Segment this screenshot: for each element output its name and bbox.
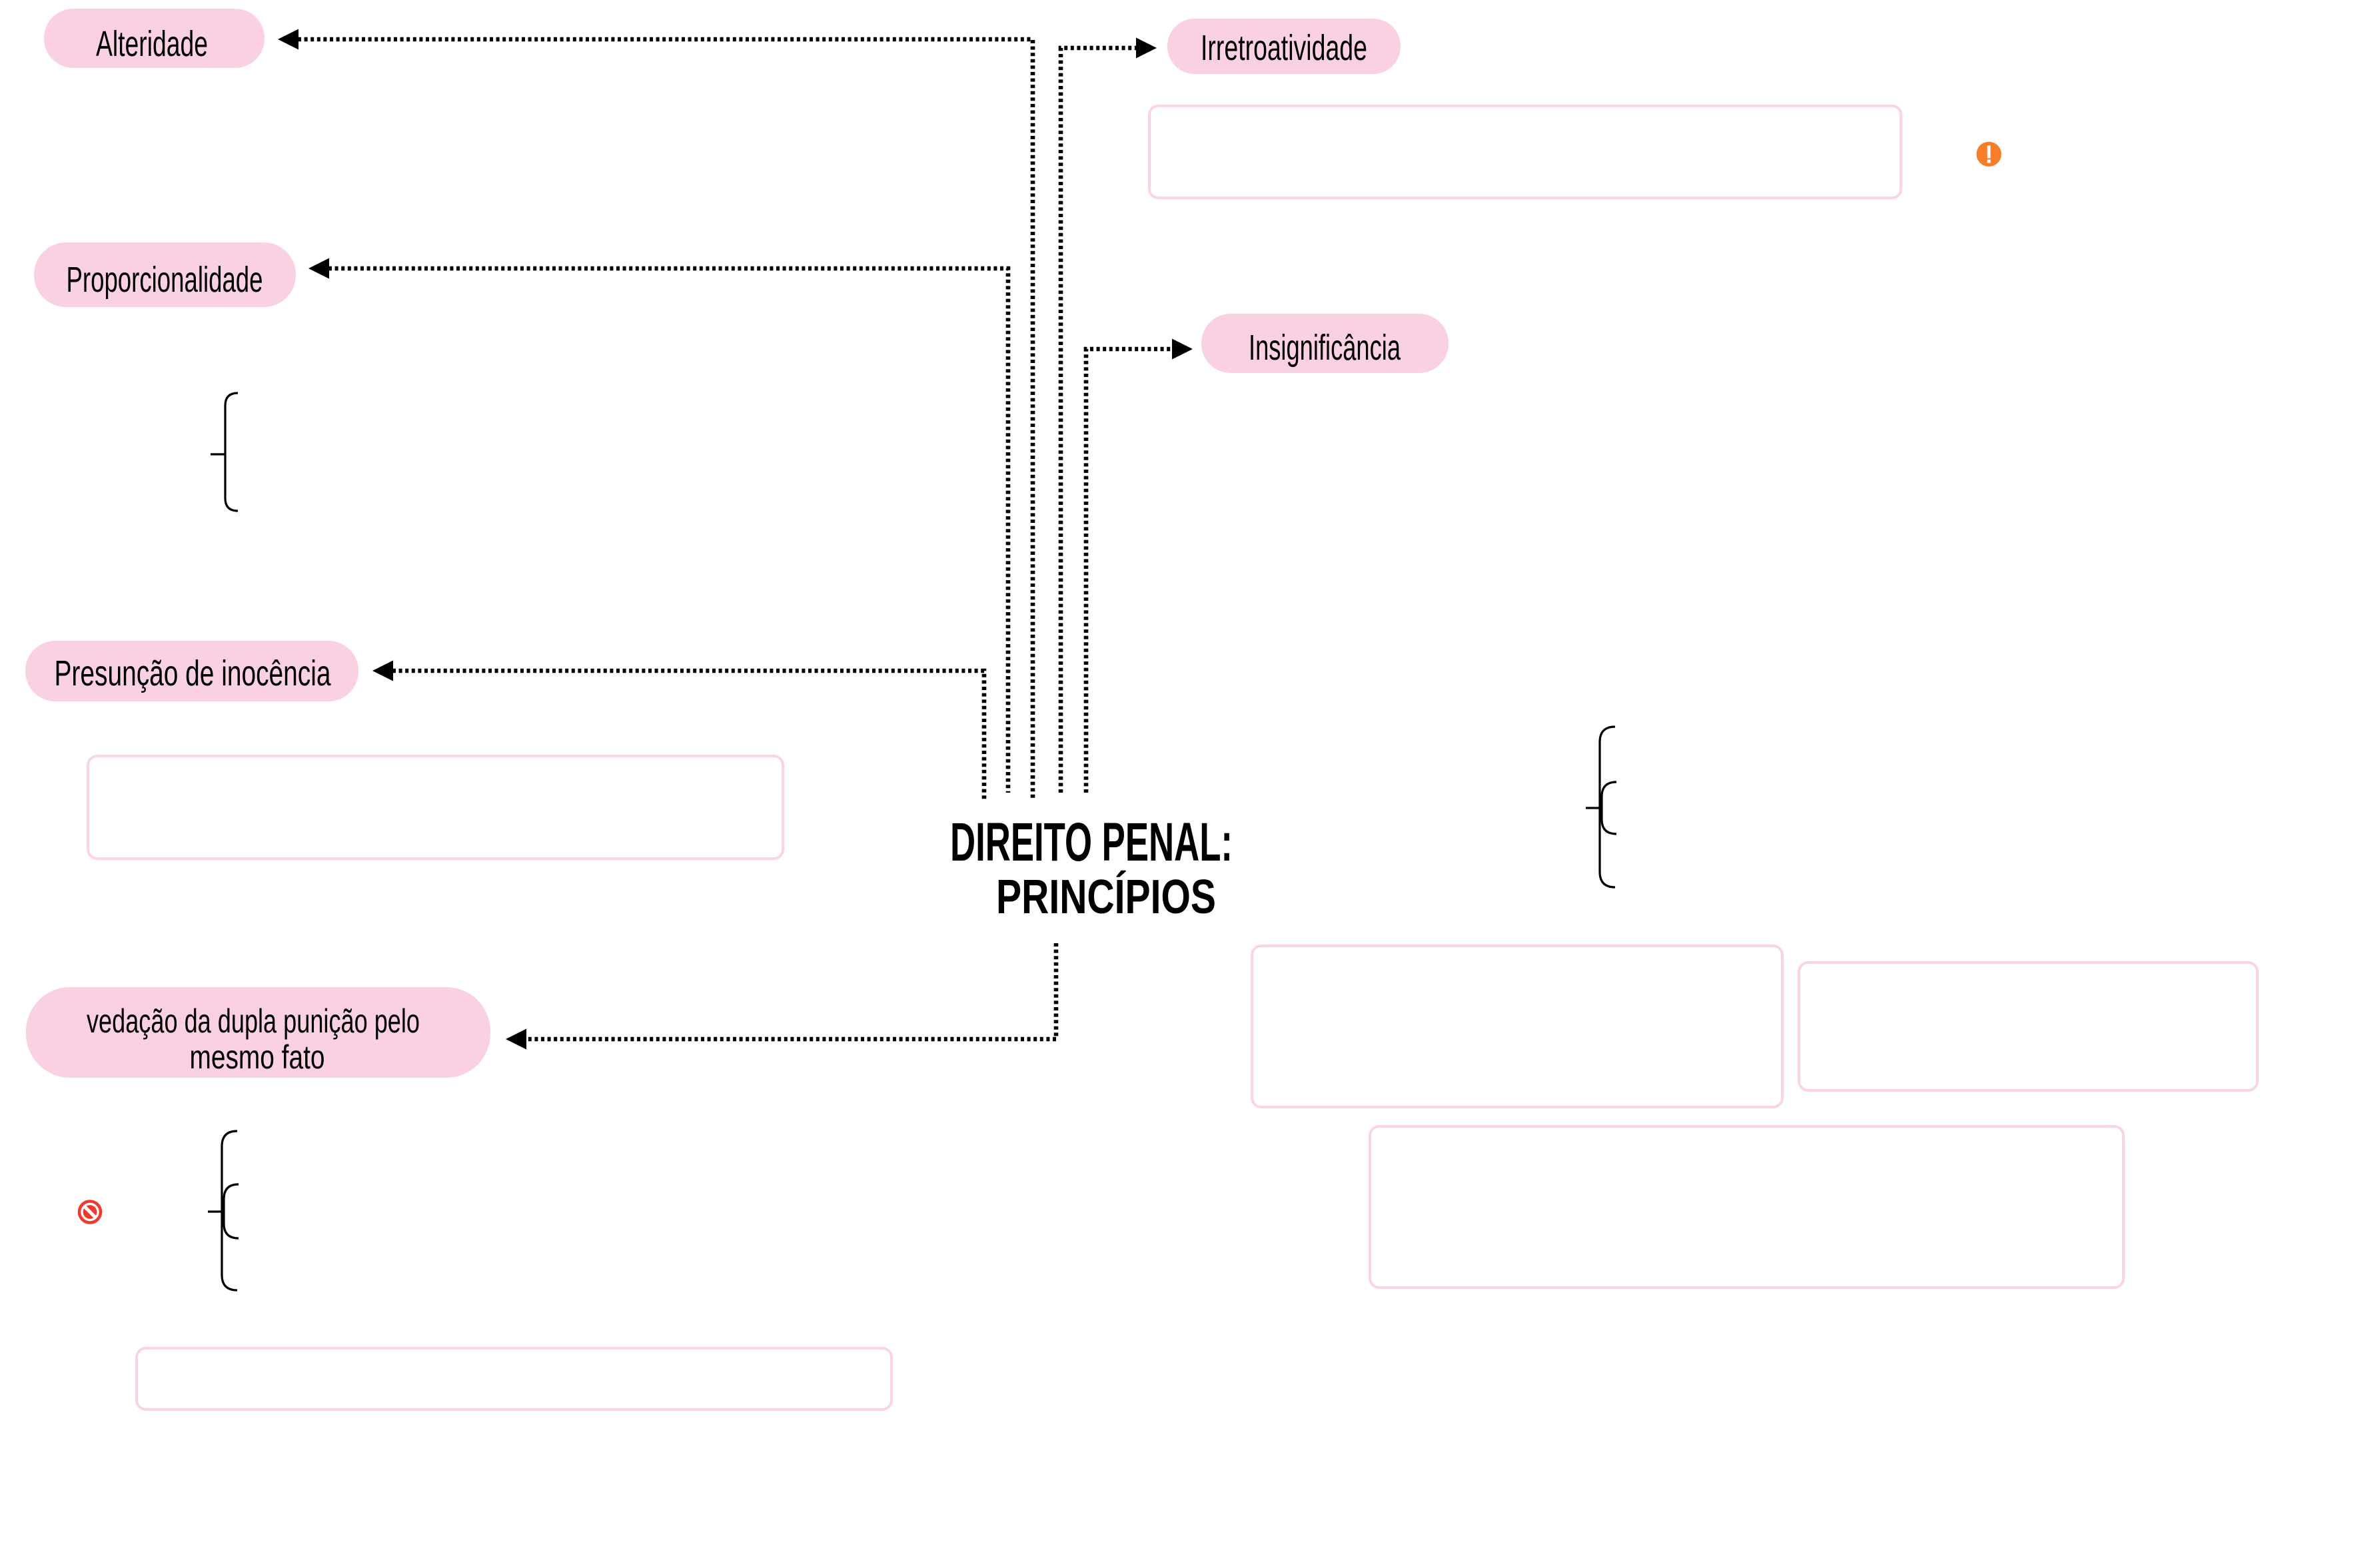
svg-text:Presunção de inocência: Presunção de inocência (55, 653, 332, 693)
svg-text:Insignificância: Insignificância (1249, 328, 1401, 368)
svg-text:DIREITO PENAL:: DIREITO PENAL: (950, 812, 1233, 873)
svg-text:Irretroatividade: Irretroatividade (1201, 28, 1367, 68)
svg-text:vedação da dupla punição pelo: vedação da dupla punição pelo (87, 1002, 420, 1040)
svg-text:Proporcionalidade: Proporcionalidade (67, 260, 263, 300)
svg-text:PRINCÍPIOS: PRINCÍPIOS (996, 871, 1216, 924)
svg-text:Alteridade: Alteridade (96, 24, 208, 64)
svg-text:mesmo fato: mesmo fato (190, 1038, 325, 1076)
